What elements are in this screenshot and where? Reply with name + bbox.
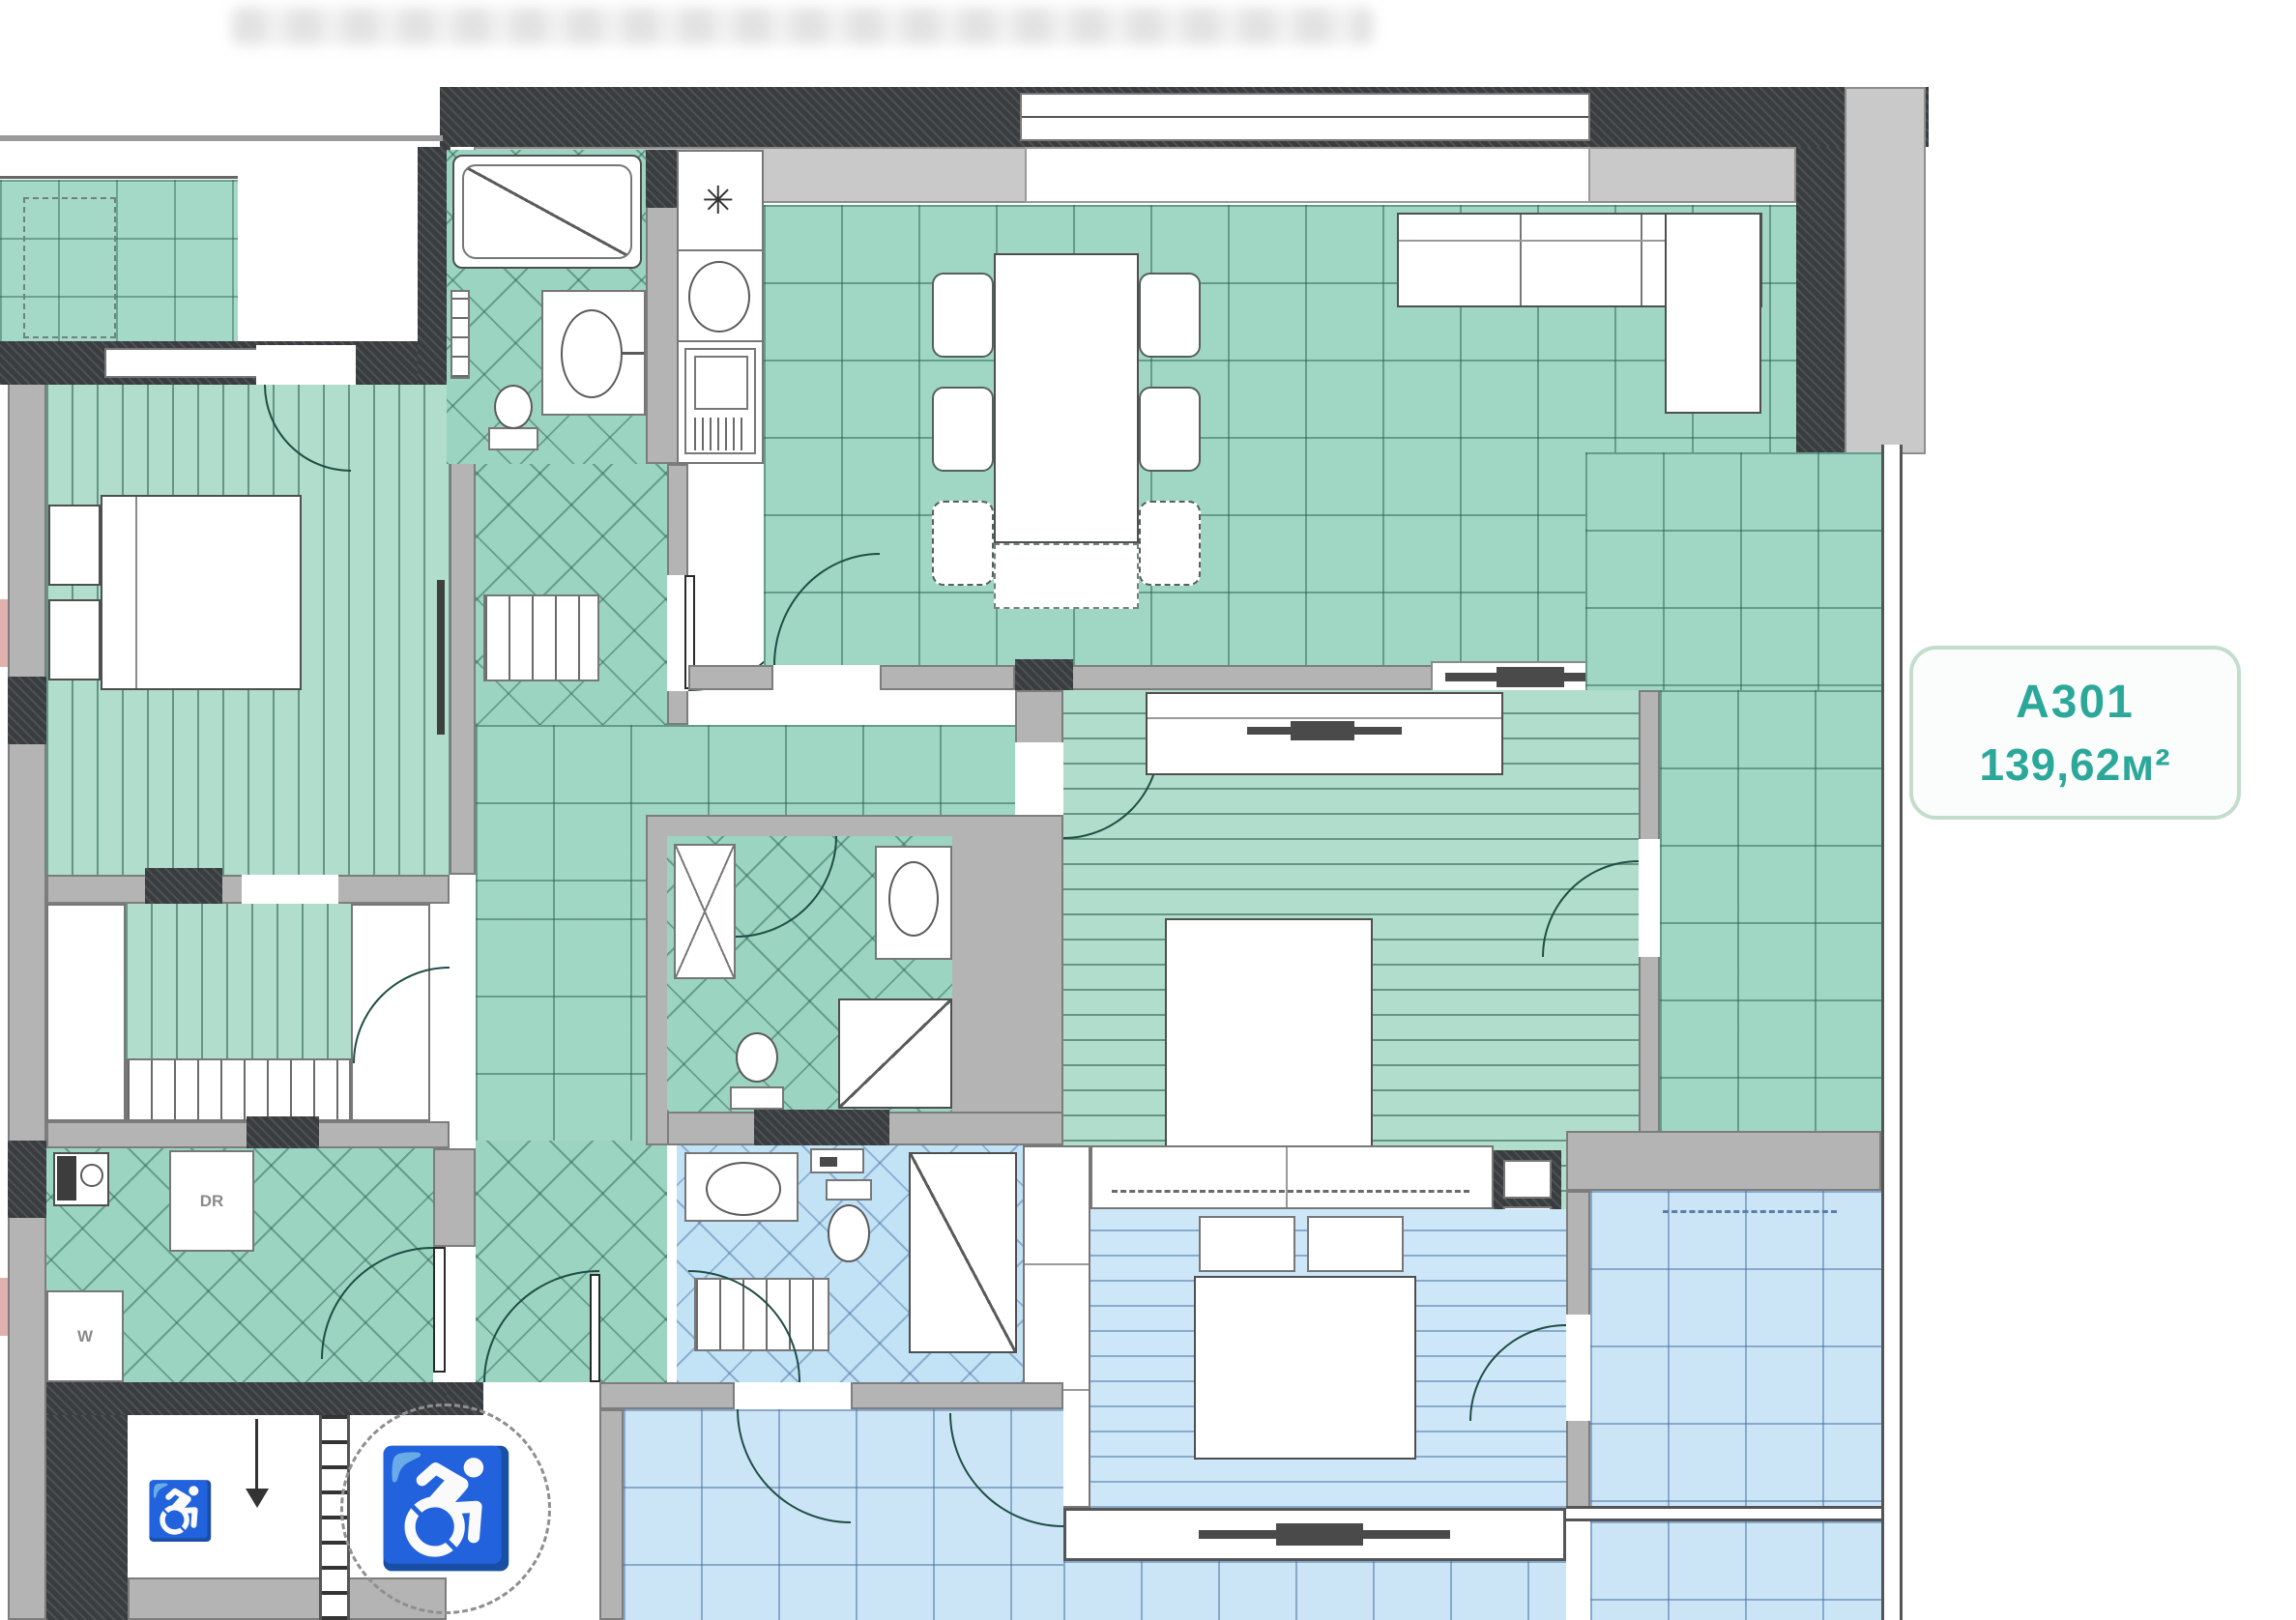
tv-line	[437, 580, 445, 735]
dressing-door-gap	[450, 967, 476, 1063]
terrace-green-lower	[1660, 690, 1881, 1131]
wheelchair-icon-small: ♿	[145, 1484, 215, 1540]
dryer-label: DR	[200, 1192, 224, 1211]
chair-6-dashed	[1139, 501, 1201, 586]
bathtub-inner	[462, 164, 632, 259]
washer-drum	[80, 1164, 103, 1187]
toilet-top-bath	[488, 385, 538, 454]
chair-2	[932, 387, 994, 472]
watermark-blur	[232, 8, 1373, 44]
bed-master	[101, 495, 302, 690]
blue-shower	[909, 1152, 1017, 1353]
towel-radiator	[450, 290, 470, 379]
nightstand-2	[48, 599, 101, 680]
wall-bath-left	[418, 147, 450, 385]
wheelchair-icon-large: ♿	[375, 1452, 517, 1566]
blue-wardrobe-row-dash	[1112, 1190, 1469, 1193]
bed-head-line	[135, 497, 137, 688]
blue-bed-pillow-1	[1199, 1216, 1295, 1272]
bath2-shower	[838, 998, 952, 1109]
window-front-strip	[1025, 147, 1590, 203]
wall-right-upper	[1796, 147, 1845, 452]
floor-plan: DR W ✳	[0, 0, 2296, 1620]
blue-wardrobe-row	[1090, 1145, 1494, 1209]
sofa-divider-2	[1641, 215, 1642, 305]
wall-left-dark-2	[8, 677, 46, 744]
wall-blue-hall-left	[599, 1409, 624, 1620]
kitchen-divider-2	[679, 340, 762, 342]
terrace-green-upper	[1585, 452, 1881, 690]
stove-oven	[694, 356, 748, 410]
window-top	[1020, 93, 1590, 141]
line-loggia-top	[0, 176, 238, 179]
bath2-sink-box	[875, 846, 952, 960]
midbed-window-lens-core	[1497, 667, 1564, 687]
blue-counter-fixture-knob	[820, 1157, 837, 1167]
dressing-top-gap	[242, 875, 338, 904]
chair-5-dashed	[932, 501, 994, 586]
bed-mid	[1165, 918, 1373, 1150]
stair-arrow-head	[246, 1489, 269, 1508]
toilet-tank	[488, 427, 538, 450]
kitchen-sink	[688, 261, 750, 333]
blue-bedroom-terrace-strip	[1063, 1561, 1566, 1620]
wall-laundry-bottom	[46, 1382, 447, 1415]
room-corridor-upper	[476, 918, 667, 1141]
accessibility-circle: ♿	[340, 1403, 551, 1614]
ledge-right	[1845, 87, 1926, 454]
terrace-blue-sill	[1566, 1506, 1881, 1521]
blue-bedroom-door-gap	[1566, 1315, 1590, 1421]
blue-shaft-inner1	[1503, 1160, 1552, 1199]
blue-toilet	[822, 1179, 876, 1268]
blue-toilet-tank	[826, 1179, 872, 1201]
unit-label-box: A301 139,62м²	[1909, 646, 2241, 820]
blue-wardrobe-col-line1	[1025, 1263, 1089, 1265]
neighbor-pink-2	[0, 1278, 8, 1336]
midbed-wardrobe-line	[1148, 717, 1501, 719]
bedroom-door-gap	[256, 345, 356, 385]
sink-top-bath-basin	[561, 309, 623, 398]
washer-box: W	[46, 1290, 124, 1382]
bath2-sink-basin	[888, 861, 939, 937]
washer-label: W	[77, 1327, 93, 1346]
fridge-icon: ✳	[702, 182, 735, 220]
bath2-toilet-bowl	[736, 1032, 778, 1083]
entry-door-leaf	[590, 1274, 600, 1382]
stair-arrow-line	[255, 1419, 258, 1489]
washer-panel	[57, 1156, 76, 1201]
wall-laundry-right	[433, 1148, 476, 1247]
dryer-box: DR	[169, 1150, 254, 1252]
wall-stair-left	[46, 1415, 128, 1620]
midbed-wardrobe-handle-core	[1291, 721, 1354, 740]
wall-living-hall-1	[688, 665, 773, 690]
unit-code: A301	[2016, 676, 2135, 729]
terrace-divider	[1566, 1131, 1881, 1191]
entry-door-gap	[483, 1382, 599, 1415]
bathtub	[452, 155, 642, 269]
chair-1	[932, 273, 994, 358]
neighbor-pink-1	[0, 599, 8, 667]
bath2-toilet-tank	[730, 1086, 784, 1110]
wall-bath-right-dark	[646, 150, 679, 208]
sofa-divider-1	[1520, 215, 1522, 305]
wall-blue-hall-top-1	[599, 1382, 735, 1409]
stove	[684, 348, 756, 454]
wall-left-band	[8, 208, 46, 1620]
terrace-blue-below	[1590, 1521, 1881, 1620]
blue-wardrobe-row-line	[1286, 1147, 1288, 1207]
terrace-rail	[1881, 445, 1903, 1620]
line-top-left	[0, 135, 443, 141]
sofa-chaise	[1665, 213, 1761, 414]
wardrobe-left	[46, 904, 126, 1121]
blue-sink-basin	[706, 1162, 781, 1216]
bath2-toilet	[730, 1027, 784, 1112]
bed-blue	[1194, 1276, 1416, 1460]
wall-mid-bottom-dark	[754, 1110, 889, 1146]
wall-midbed-top-dark-1	[1015, 659, 1073, 692]
blue-bedroom-window-core	[1276, 1523, 1363, 1546]
wall-living-hall-2	[880, 665, 1015, 690]
loggia-furniture-dashed	[23, 197, 116, 338]
chair-4	[1139, 387, 1201, 472]
stove-grill	[694, 418, 748, 450]
room-dressing	[126, 904, 351, 1058]
blue-sink-box	[684, 1152, 799, 1222]
window-midline	[1022, 116, 1588, 118]
dressing-bench	[126, 1058, 351, 1121]
washer-appliance	[53, 1152, 109, 1206]
unit-area: 139,62м²	[1979, 738, 2170, 791]
terrace-blue-dashed	[1663, 1210, 1837, 1213]
blue-counter-fixture	[810, 1148, 864, 1173]
midbed-terrace-door-gap	[1639, 839, 1660, 957]
dining-table-extension	[994, 543, 1139, 609]
dining-table	[994, 253, 1139, 543]
laundry-door-leaf	[433, 1247, 446, 1373]
wall-left-dark-3	[8, 1141, 46, 1218]
wall-dressing-top-dark	[145, 868, 222, 907]
nightstand-1	[48, 505, 101, 586]
terrace-blue	[1590, 1191, 1881, 1506]
sink-top-bath	[541, 290, 646, 416]
bath2-closet	[674, 844, 736, 979]
wall-blue-hall-top-2	[851, 1382, 1063, 1409]
sink-top-bath-tap	[621, 352, 644, 355]
toilet-bowl	[494, 385, 533, 429]
vestibule-bench	[483, 594, 599, 681]
chair-3	[1139, 273, 1201, 358]
blue-bed-pillow-2	[1307, 1216, 1404, 1272]
kitchen-divider-1	[679, 249, 762, 251]
blue-toilet-bowl	[828, 1204, 870, 1262]
